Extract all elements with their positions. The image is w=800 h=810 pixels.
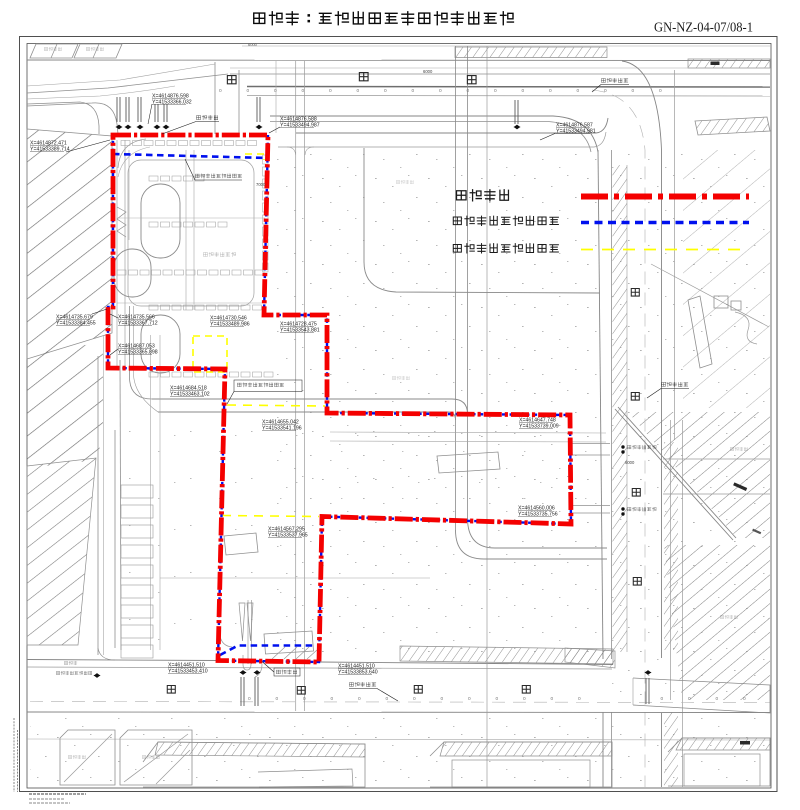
svg-text:0: 0 — [632, 88, 635, 94]
svg-text:0: 0 — [577, 88, 580, 94]
svg-text:0: 0 — [441, 696, 444, 702]
svg-text:0: 0 — [743, 696, 746, 702]
svg-text:0: 0 — [716, 696, 719, 702]
svg-text:0: 0 — [219, 88, 222, 94]
svg-text:6000: 6000 — [423, 69, 433, 74]
svg-text:0: 0 — [578, 696, 581, 702]
svg-text:0: 0 — [274, 88, 277, 94]
svg-text:0: 0 — [494, 88, 497, 94]
svg-text:0: 0 — [357, 88, 360, 94]
svg-text:0: 0 — [358, 696, 361, 702]
svg-text:0: 0 — [386, 696, 389, 702]
svg-text:0: 0 — [551, 696, 554, 702]
svg-text:0: 0 — [522, 88, 525, 94]
svg-text:6000: 6000 — [248, 42, 258, 47]
svg-text:GN-NZ-04-07/08-1: GN-NZ-04-07/08-1 — [654, 20, 753, 35]
svg-text:0: 0 — [523, 696, 526, 702]
svg-text:0: 0 — [468, 696, 471, 702]
svg-text:0: 0 — [467, 88, 470, 94]
svg-text:0: 0 — [331, 696, 334, 702]
svg-text:7000: 7000 — [256, 182, 266, 187]
svg-text:0: 0 — [303, 696, 306, 702]
svg-text:0: 0 — [248, 696, 251, 702]
svg-text:0: 0 — [439, 88, 442, 94]
svg-text:0: 0 — [329, 88, 332, 94]
svg-text:0: 0 — [412, 88, 415, 94]
svg-text:0: 0 — [604, 88, 607, 94]
svg-text:0: 0 — [384, 88, 387, 94]
svg-text:0: 0 — [549, 88, 552, 94]
svg-text:0: 0 — [661, 696, 664, 702]
svg-text:0: 0 — [247, 88, 250, 94]
svg-text:0: 0 — [496, 696, 499, 702]
svg-text:0: 0 — [413, 696, 416, 702]
svg-text:6000: 6000 — [625, 460, 635, 465]
svg-text:0: 0 — [302, 88, 305, 94]
svg-text:0: 0 — [276, 696, 279, 702]
svg-text:0: 0 — [688, 696, 691, 702]
svg-text:0: 0 — [659, 88, 662, 94]
